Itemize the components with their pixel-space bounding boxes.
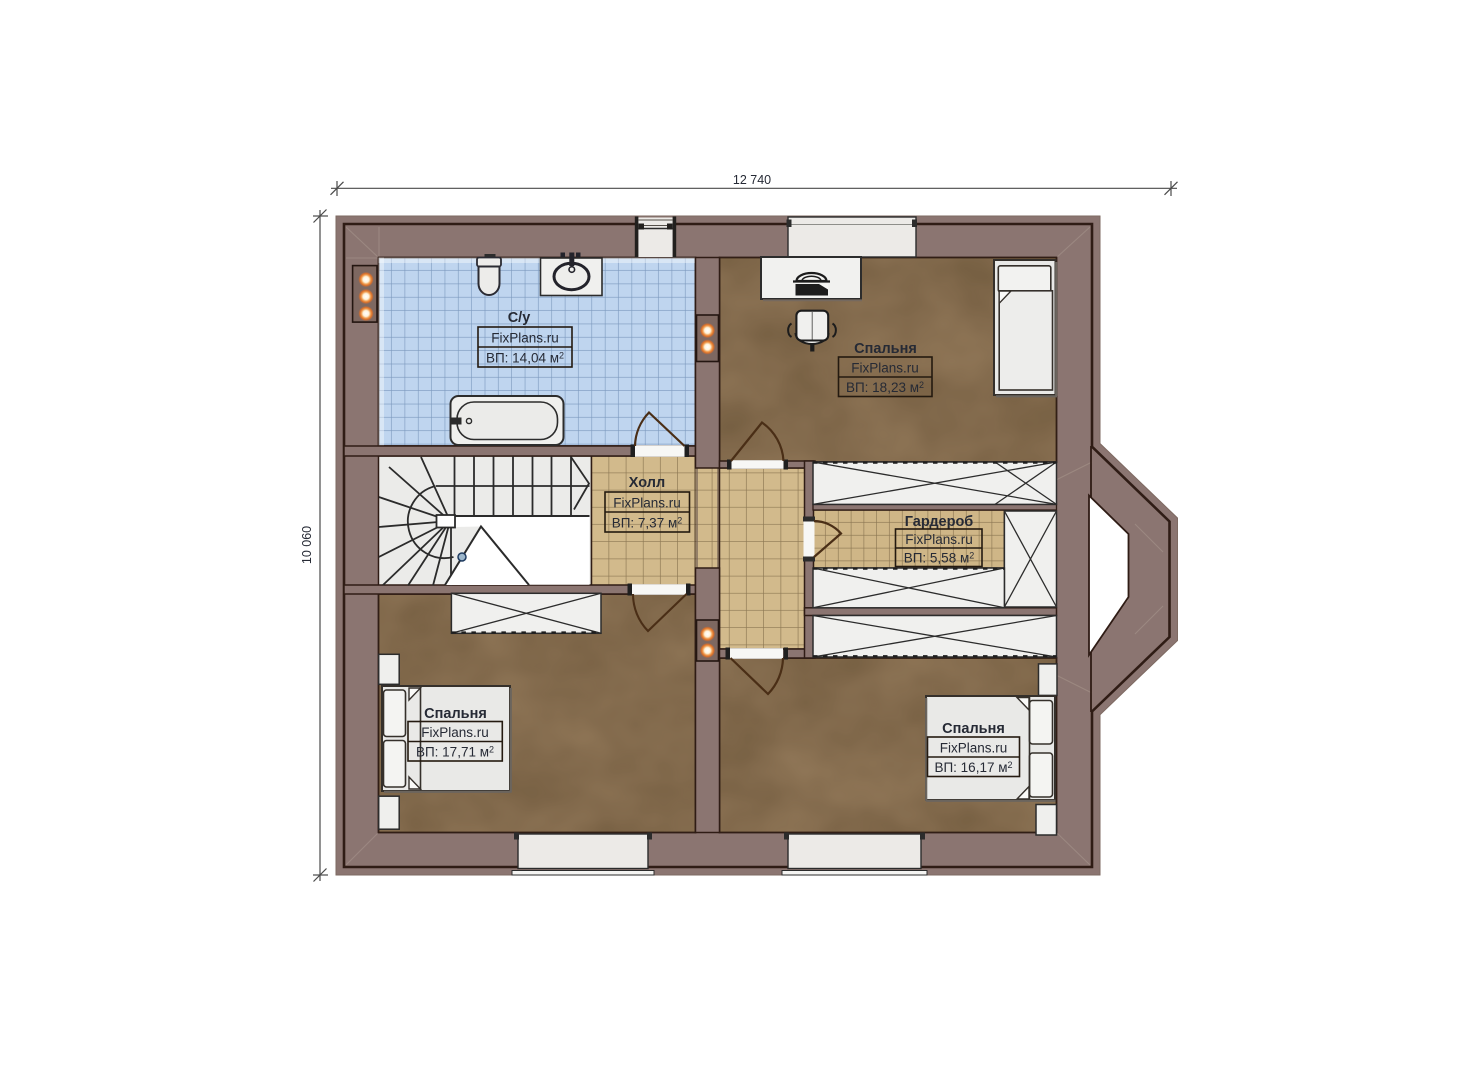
svg-text:ВП: 18,23 м2: ВП: 18,23 м2	[846, 380, 924, 395]
svg-text:FixPlans.ru: FixPlans.ru	[851, 361, 919, 376]
svg-text:Спальня: Спальня	[854, 341, 917, 357]
svg-text:Холл: Холл	[629, 475, 665, 491]
svg-text:С/у: С/у	[508, 310, 531, 326]
svg-text:Спальня: Спальня	[942, 721, 1005, 737]
svg-text:ВП: 17,71 м2: ВП: 17,71 м2	[416, 745, 494, 760]
svg-text:Гардероб: Гардероб	[905, 514, 974, 530]
svg-text:ВП: 5,58 м2: ВП: 5,58 м2	[904, 551, 975, 566]
svg-text:12 740: 12 740	[733, 173, 771, 187]
svg-text:10 060: 10 060	[300, 526, 314, 564]
svg-text:FixPlans.ru: FixPlans.ru	[491, 331, 559, 346]
svg-text:ВП: 14,04 м2: ВП: 14,04 м2	[486, 351, 564, 366]
svg-text:ВП: 7,37 м2: ВП: 7,37 м2	[612, 516, 683, 531]
svg-text:ВП: 16,17 м2: ВП: 16,17 м2	[934, 760, 1012, 775]
svg-text:FixPlans.ru: FixPlans.ru	[940, 741, 1008, 756]
svg-text:FixPlans.ru: FixPlans.ru	[421, 725, 489, 740]
svg-text:FixPlans.ru: FixPlans.ru	[613, 496, 681, 511]
svg-text:Спальня: Спальня	[424, 706, 487, 722]
svg-text:FixPlans.ru: FixPlans.ru	[905, 532, 973, 547]
